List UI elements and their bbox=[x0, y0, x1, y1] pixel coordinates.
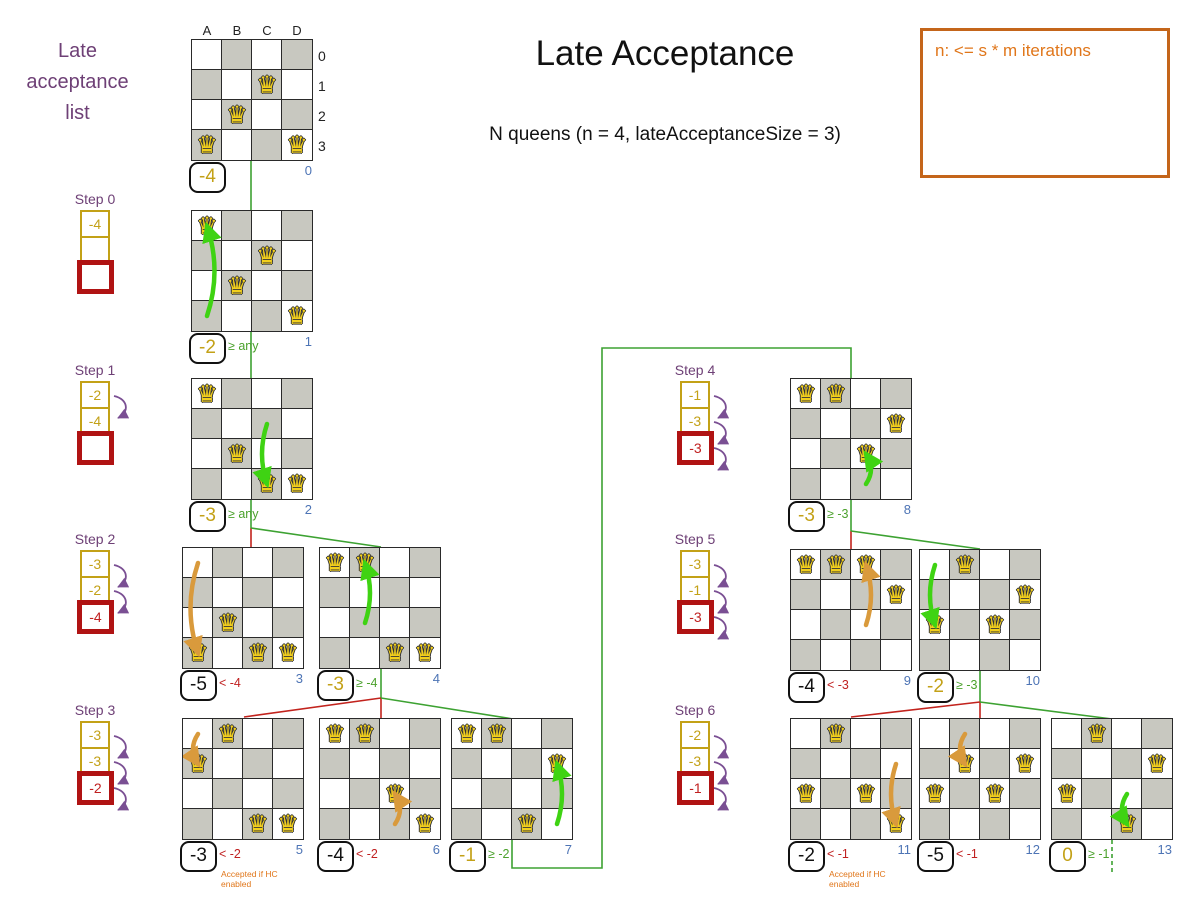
board-cell bbox=[192, 469, 222, 499]
queen-icon: ♛ bbox=[213, 719, 243, 749]
step-label: Step 1 bbox=[64, 362, 126, 378]
iteration-index: 8 bbox=[887, 502, 911, 517]
board-cell bbox=[851, 610, 881, 640]
chess-board: ♛♛♛♛-4< -39 bbox=[790, 549, 912, 671]
board-cell bbox=[482, 779, 512, 809]
board-cell bbox=[512, 749, 542, 779]
board-cell bbox=[881, 610, 911, 640]
board-cell bbox=[1082, 749, 1112, 779]
queen-icon: ♛ bbox=[320, 719, 350, 749]
board-cell bbox=[1010, 550, 1040, 580]
board-cell bbox=[380, 608, 410, 638]
board-cell bbox=[183, 608, 213, 638]
late-list-current-cell: -3 bbox=[677, 431, 714, 465]
chess-board: ♛♛♛♛-2≥ any1 bbox=[191, 210, 313, 332]
connector-red bbox=[244, 698, 381, 717]
queen-icon: ♛ bbox=[791, 379, 821, 409]
board-cell bbox=[821, 640, 851, 670]
board-cell bbox=[282, 40, 312, 70]
board-cell bbox=[282, 439, 312, 469]
queen-icon: ♛ bbox=[273, 809, 303, 839]
board-cell bbox=[791, 809, 821, 839]
queen-icon: ♛ bbox=[380, 638, 410, 668]
board-cell bbox=[881, 550, 911, 580]
queen-icon: ♛ bbox=[821, 719, 851, 749]
acceptance-condition: ≥ any bbox=[228, 507, 259, 521]
board-cell bbox=[821, 580, 851, 610]
board-cell bbox=[252, 439, 282, 469]
column-label: B bbox=[222, 23, 252, 38]
board-cell bbox=[222, 379, 252, 409]
board-cell bbox=[243, 719, 273, 749]
queen-icon: ♛ bbox=[1112, 809, 1142, 839]
row-label: 3 bbox=[318, 138, 326, 154]
diagram-title: Late Acceptance bbox=[380, 34, 950, 74]
board-cell bbox=[252, 100, 282, 130]
board-cell bbox=[950, 580, 980, 610]
board-cell bbox=[980, 580, 1010, 610]
board-cell bbox=[482, 809, 512, 839]
board-cell bbox=[192, 100, 222, 130]
queen-icon: ♛ bbox=[252, 469, 282, 499]
board-cell bbox=[252, 379, 282, 409]
board-cell bbox=[213, 779, 243, 809]
board-cell bbox=[482, 749, 512, 779]
connector-green bbox=[251, 528, 381, 547]
score-badge: -5 bbox=[917, 841, 954, 872]
board-cell bbox=[1010, 779, 1040, 809]
board-cell bbox=[222, 301, 252, 331]
board-cell bbox=[222, 409, 252, 439]
score-badge: -4 bbox=[317, 841, 354, 872]
board-cell bbox=[791, 719, 821, 749]
board-cell bbox=[1142, 779, 1172, 809]
queen-icon: ♛ bbox=[282, 469, 312, 499]
board-cell bbox=[1142, 809, 1172, 839]
iteration-index: 2 bbox=[288, 502, 312, 517]
chess-board: ♛♛♛♛-4< -26 bbox=[319, 718, 441, 840]
board-cell bbox=[920, 719, 950, 749]
connector-green bbox=[851, 531, 980, 549]
board-cell bbox=[791, 749, 821, 779]
queen-icon: ♛ bbox=[452, 719, 482, 749]
board-cell bbox=[821, 439, 851, 469]
board-cell bbox=[950, 719, 980, 749]
connector-red bbox=[851, 702, 980, 717]
step-label: Step 6 bbox=[664, 702, 726, 718]
queen-icon: ♛ bbox=[920, 610, 950, 640]
acceptance-condition: < -2 bbox=[219, 847, 241, 861]
iteration-index: 7 bbox=[548, 842, 572, 857]
board-cell bbox=[273, 548, 303, 578]
board-cell bbox=[282, 100, 312, 130]
board-cell bbox=[192, 301, 222, 331]
board-cell bbox=[821, 610, 851, 640]
board-cell bbox=[851, 809, 881, 839]
queen-icon: ♛ bbox=[222, 439, 252, 469]
step-label: Step 5 bbox=[664, 531, 726, 547]
board-cell bbox=[980, 550, 1010, 580]
late-list-current-cell: -1 bbox=[677, 771, 714, 805]
board-cell bbox=[950, 610, 980, 640]
board-cell bbox=[282, 211, 312, 241]
board-cell bbox=[320, 578, 350, 608]
step-label: Step 0 bbox=[64, 191, 126, 207]
board-cell bbox=[1112, 719, 1142, 749]
board-cell bbox=[791, 640, 821, 670]
queen-icon: ♛ bbox=[512, 809, 542, 839]
board-cell bbox=[192, 70, 222, 100]
board-cell bbox=[881, 469, 911, 499]
board-cell bbox=[920, 640, 950, 670]
board-cell bbox=[980, 809, 1010, 839]
connector-green bbox=[381, 698, 513, 719]
board-cell bbox=[243, 548, 273, 578]
acceptance-condition: < -1 bbox=[956, 847, 978, 861]
chess-board: ♛♛♛♛-2≥ -310 bbox=[919, 549, 1041, 671]
score-badge: -3 bbox=[788, 501, 825, 532]
board-cell bbox=[980, 640, 1010, 670]
board-cell bbox=[512, 779, 542, 809]
iteration-index: 0 bbox=[288, 163, 312, 178]
board-cell bbox=[222, 211, 252, 241]
late-list-current-cell bbox=[77, 431, 114, 465]
board-cell bbox=[282, 70, 312, 100]
board-cell bbox=[881, 749, 911, 779]
board-cell bbox=[980, 749, 1010, 779]
board-cell bbox=[222, 130, 252, 160]
shift-arrow-icon bbox=[111, 393, 137, 428]
board-cell bbox=[821, 809, 851, 839]
connector-green bbox=[980, 702, 1112, 719]
board-cell bbox=[410, 548, 440, 578]
iteration-index: 3 bbox=[279, 671, 303, 686]
acceptance-condition: < -3 bbox=[827, 678, 849, 692]
board-cell bbox=[920, 809, 950, 839]
queen-icon: ♛ bbox=[222, 271, 252, 301]
board-cell bbox=[350, 638, 380, 668]
board-cell bbox=[821, 409, 851, 439]
board-cell bbox=[881, 719, 911, 749]
column-label: A bbox=[192, 23, 222, 38]
board-cell bbox=[213, 578, 243, 608]
queen-icon: ♛ bbox=[1010, 580, 1040, 610]
board-cell bbox=[243, 578, 273, 608]
late-list-cell: -3 bbox=[80, 721, 110, 749]
late-list-cell: -4 bbox=[80, 210, 110, 238]
board-cell bbox=[320, 608, 350, 638]
board-cell bbox=[192, 40, 222, 70]
board-cell bbox=[273, 719, 303, 749]
board-cell bbox=[542, 719, 572, 749]
board-cell bbox=[350, 749, 380, 779]
queen-icon: ♛ bbox=[192, 130, 222, 160]
score-badge: -4 bbox=[189, 162, 226, 193]
iteration-index: 10 bbox=[1016, 673, 1040, 688]
board-cell bbox=[192, 439, 222, 469]
board-cell bbox=[542, 809, 572, 839]
iterations-info-box: n: <= s * m iterations bbox=[920, 28, 1170, 178]
late-list-cell: -3 bbox=[80, 550, 110, 578]
board-cell bbox=[243, 779, 273, 809]
late-list-cell: -2 bbox=[680, 721, 710, 749]
board-cell bbox=[1082, 809, 1112, 839]
board-cell bbox=[851, 409, 881, 439]
late-list-cell: -1 bbox=[680, 381, 710, 409]
board-cell bbox=[821, 779, 851, 809]
queen-icon: ♛ bbox=[881, 409, 911, 439]
board-cell bbox=[791, 610, 821, 640]
board-cell bbox=[192, 241, 222, 271]
score-badge: -3 bbox=[189, 501, 226, 532]
board-cell bbox=[881, 379, 911, 409]
board-cell bbox=[320, 749, 350, 779]
board-cell bbox=[252, 130, 282, 160]
queen-icon: ♛ bbox=[881, 809, 911, 839]
chess-board: ♛♛♛♛-3< -25Accepted if HC enabled bbox=[182, 718, 304, 840]
board-cell bbox=[1010, 809, 1040, 839]
board-cell bbox=[950, 809, 980, 839]
board-cell bbox=[222, 469, 252, 499]
board-cell bbox=[1010, 610, 1040, 640]
board-cell bbox=[222, 70, 252, 100]
queen-icon: ♛ bbox=[252, 70, 282, 100]
acceptance-condition: ≥ -3 bbox=[956, 678, 977, 692]
queen-icon: ♛ bbox=[1082, 719, 1112, 749]
board-cell bbox=[410, 608, 440, 638]
board-cell bbox=[243, 608, 273, 638]
acceptance-condition: ≥ -3 bbox=[827, 507, 848, 521]
board-cell bbox=[273, 779, 303, 809]
queen-icon: ♛ bbox=[950, 550, 980, 580]
board-cell bbox=[192, 409, 222, 439]
queen-icon: ♛ bbox=[183, 749, 213, 779]
late-list-cell: -3 bbox=[680, 550, 710, 578]
chess-board: ♛♛♛♛-5< -43 bbox=[182, 547, 304, 669]
queen-icon: ♛ bbox=[881, 580, 911, 610]
chess-board: ♛♛♛♛-2< -111Accepted if HC enabled bbox=[790, 718, 912, 840]
row-label: 2 bbox=[318, 108, 326, 124]
board-cell bbox=[222, 40, 252, 70]
score-badge: -3 bbox=[317, 670, 354, 701]
iteration-index: 9 bbox=[887, 673, 911, 688]
column-label: C bbox=[252, 23, 282, 38]
queen-icon: ♛ bbox=[791, 779, 821, 809]
board-cell bbox=[851, 379, 881, 409]
shift-arrow-icon bbox=[111, 785, 137, 820]
shift-arrow-icon bbox=[111, 588, 137, 623]
acceptance-condition: ≥ any bbox=[228, 339, 259, 353]
board-cell bbox=[851, 640, 881, 670]
board-cell bbox=[252, 409, 282, 439]
queen-icon: ♛ bbox=[243, 809, 273, 839]
board-cell bbox=[183, 578, 213, 608]
score-badge: -4 bbox=[788, 672, 825, 703]
board-cell bbox=[183, 779, 213, 809]
chess-board: ♛♛♛♛-3≥ any2 bbox=[191, 378, 313, 500]
iterations-info-text: n: <= s * m iterations bbox=[935, 41, 1155, 61]
queen-icon: ♛ bbox=[1052, 779, 1082, 809]
acceptance-condition: < -4 bbox=[219, 676, 241, 690]
chess-board: ♛♛♛♛-3≥ -38 bbox=[790, 378, 912, 500]
queen-icon: ♛ bbox=[222, 100, 252, 130]
board-cell bbox=[452, 779, 482, 809]
board-cell bbox=[320, 779, 350, 809]
iteration-index: 13 bbox=[1148, 842, 1172, 857]
board-cell bbox=[273, 578, 303, 608]
board-cell bbox=[320, 638, 350, 668]
hc-note: Accepted if HC enabled bbox=[829, 869, 911, 889]
queen-icon: ♛ bbox=[821, 379, 851, 409]
queen-icon: ♛ bbox=[192, 379, 222, 409]
board-cell bbox=[273, 608, 303, 638]
board-cell bbox=[1010, 719, 1040, 749]
chess-board: ♛♛♛♛-5< -112 bbox=[919, 718, 1041, 840]
board-cell bbox=[1052, 719, 1082, 749]
iteration-index: 12 bbox=[1016, 842, 1040, 857]
board-cell bbox=[881, 439, 911, 469]
board-cell bbox=[881, 640, 911, 670]
row-label: 0 bbox=[318, 48, 326, 64]
queen-icon: ♛ bbox=[410, 809, 440, 839]
column-label: D bbox=[282, 23, 312, 38]
late-list-current-cell: -3 bbox=[677, 600, 714, 634]
board-cell bbox=[243, 749, 273, 779]
score-badge: -5 bbox=[180, 670, 217, 701]
board-cell bbox=[920, 749, 950, 779]
late-acceptance-list-label: Late acceptance list bbox=[15, 36, 140, 129]
score-badge: -1 bbox=[449, 841, 486, 872]
queen-icon: ♛ bbox=[1142, 749, 1172, 779]
score-badge: -3 bbox=[180, 841, 217, 872]
chess-board: ♛♛♛♛0≥ -113 bbox=[1051, 718, 1173, 840]
board-cell bbox=[183, 809, 213, 839]
board-cell bbox=[851, 580, 881, 610]
queen-icon: ♛ bbox=[320, 548, 350, 578]
board-cell bbox=[791, 409, 821, 439]
late-list-cell: -2 bbox=[80, 381, 110, 409]
board-cell bbox=[920, 580, 950, 610]
queen-icon: ♛ bbox=[980, 610, 1010, 640]
board-cell bbox=[821, 469, 851, 499]
queen-icon: ♛ bbox=[350, 548, 380, 578]
board-cell bbox=[282, 241, 312, 271]
board-cell bbox=[410, 719, 440, 749]
queen-icon: ♛ bbox=[791, 550, 821, 580]
board-cell bbox=[791, 469, 821, 499]
board-cell bbox=[1142, 719, 1172, 749]
step-label: Step 3 bbox=[64, 702, 126, 718]
chess-board: ♛♛♛♛-1≥ -27 bbox=[451, 718, 573, 840]
board-cell bbox=[282, 409, 312, 439]
board-cell bbox=[1082, 779, 1112, 809]
queen-icon: ♛ bbox=[380, 779, 410, 809]
board-cell bbox=[380, 719, 410, 749]
board-cell bbox=[380, 548, 410, 578]
board-cell bbox=[213, 548, 243, 578]
queen-icon: ♛ bbox=[482, 719, 512, 749]
board-cell bbox=[851, 469, 881, 499]
queen-icon: ♛ bbox=[273, 638, 303, 668]
row-label: 1 bbox=[318, 78, 326, 94]
board-cell bbox=[222, 241, 252, 271]
queen-icon: ♛ bbox=[192, 211, 222, 241]
score-badge: -2 bbox=[917, 672, 954, 703]
queen-icon: ♛ bbox=[1010, 749, 1040, 779]
board-cell bbox=[213, 749, 243, 779]
board-cell bbox=[410, 779, 440, 809]
acceptance-condition: ≥ -1 bbox=[1088, 847, 1109, 861]
iteration-index: 5 bbox=[279, 842, 303, 857]
board-cell bbox=[252, 271, 282, 301]
board-cell bbox=[252, 301, 282, 331]
board-cell bbox=[821, 749, 851, 779]
queen-icon: ♛ bbox=[920, 779, 950, 809]
board-cell bbox=[452, 809, 482, 839]
board-cell bbox=[282, 379, 312, 409]
queen-icon: ♛ bbox=[542, 749, 572, 779]
iteration-index: 1 bbox=[288, 334, 312, 349]
shift-arrow-icon bbox=[711, 445, 737, 480]
board-cell bbox=[1052, 749, 1082, 779]
queen-icon: ♛ bbox=[282, 130, 312, 160]
queen-icon: ♛ bbox=[821, 550, 851, 580]
chess-board: ♛♛♛♛-3≥ -44 bbox=[319, 547, 441, 669]
board-cell bbox=[252, 40, 282, 70]
board-cell bbox=[282, 271, 312, 301]
queen-icon: ♛ bbox=[410, 638, 440, 668]
queen-icon: ♛ bbox=[282, 301, 312, 331]
board-cell bbox=[192, 271, 222, 301]
chess-board: ♛♛♛♛ABCD0123-40 bbox=[191, 39, 313, 161]
board-cell bbox=[410, 749, 440, 779]
board-cell bbox=[320, 809, 350, 839]
board-cell bbox=[273, 749, 303, 779]
queen-icon: ♛ bbox=[213, 608, 243, 638]
board-cell bbox=[791, 580, 821, 610]
step-label: Step 2 bbox=[64, 531, 126, 547]
board-cell bbox=[183, 548, 213, 578]
board-cell bbox=[791, 439, 821, 469]
board-cell bbox=[380, 749, 410, 779]
iteration-index: 4 bbox=[416, 671, 440, 686]
board-cell bbox=[252, 211, 282, 241]
board-cell bbox=[410, 578, 440, 608]
queen-icon: ♛ bbox=[252, 241, 282, 271]
board-cell bbox=[851, 749, 881, 779]
board-cell bbox=[380, 578, 410, 608]
late-list-current-cell: -2 bbox=[77, 771, 114, 805]
shift-arrow-icon bbox=[711, 614, 737, 649]
score-badge: -2 bbox=[189, 333, 226, 364]
queen-icon: ♛ bbox=[980, 779, 1010, 809]
iteration-index: 6 bbox=[416, 842, 440, 857]
board-cell bbox=[350, 779, 380, 809]
board-cell bbox=[1010, 640, 1040, 670]
board-cell bbox=[213, 638, 243, 668]
board-cell bbox=[542, 779, 572, 809]
board-cell bbox=[183, 719, 213, 749]
iteration-index: 11 bbox=[887, 842, 911, 857]
board-cell bbox=[1112, 749, 1142, 779]
acceptance-condition: < -1 bbox=[827, 847, 849, 861]
late-acceptance-diagram: Late acceptance list Late Acceptance N q… bbox=[0, 0, 1200, 900]
board-cell bbox=[851, 719, 881, 749]
board-cell bbox=[380, 809, 410, 839]
board-cell bbox=[350, 578, 380, 608]
board-cell bbox=[1112, 779, 1142, 809]
diagram-subtitle: N queens (n = 4, lateAcceptanceSize = 3) bbox=[380, 124, 950, 146]
